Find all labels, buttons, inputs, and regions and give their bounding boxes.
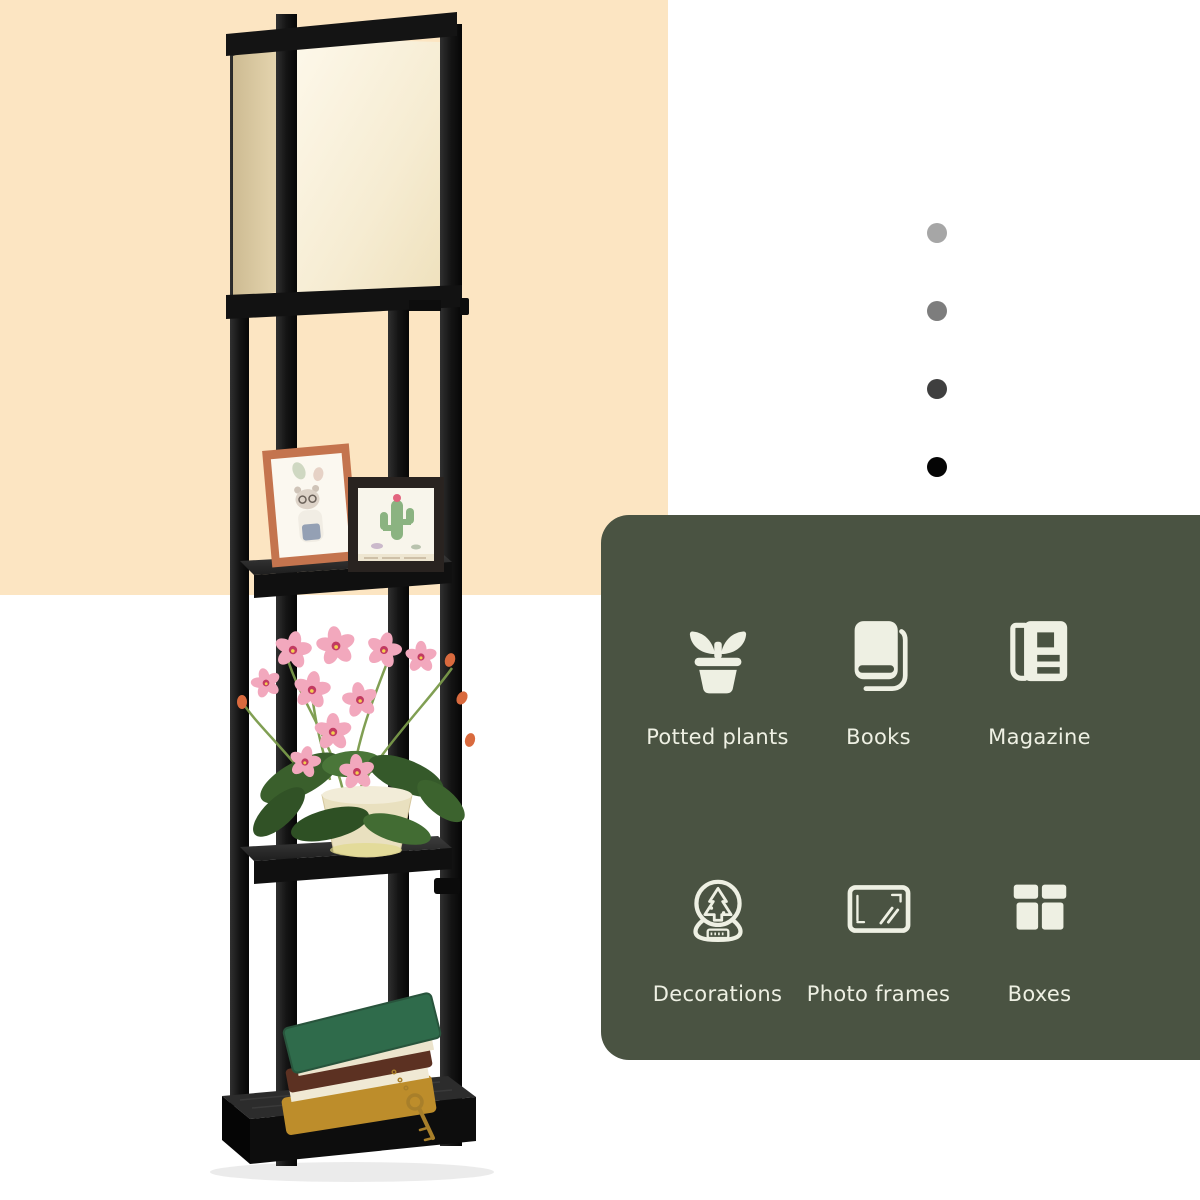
photo-frame-icon <box>834 852 924 967</box>
carousel-dot-4[interactable] <box>927 457 947 477</box>
feature-boxes: Boxes <box>959 852 1120 1061</box>
feature-label: Decorations <box>653 981 782 1007</box>
product-image: Potted plants Books Magazine <box>0 0 1200 1200</box>
feature-label: Books <box>846 724 911 750</box>
feature-label: Potted plants <box>646 724 789 750</box>
magazine-icon <box>995 595 1085 710</box>
book-icon <box>834 595 924 710</box>
feature-decorations: Decorations <box>637 852 798 1061</box>
feature-magazine: Magazine <box>959 595 1120 804</box>
potted-plant-icon <box>673 595 763 710</box>
feature-photo-frames: Photo frames <box>798 852 959 1061</box>
feature-potted-plants: Potted plants <box>637 595 798 804</box>
feature-label: Magazine <box>988 724 1091 750</box>
gift-box-icon <box>995 852 1085 967</box>
features-panel: Potted plants Books Magazine <box>601 515 1200 1060</box>
feature-label: Boxes <box>1008 981 1072 1007</box>
carousel-dots <box>927 223 947 477</box>
carousel-dot-2[interactable] <box>927 301 947 321</box>
snow-globe-icon <box>673 852 763 967</box>
carousel-dot-1[interactable] <box>927 223 947 243</box>
carousel-dot-3[interactable] <box>927 379 947 399</box>
feature-books: Books <box>798 595 959 804</box>
feature-label: Photo frames <box>807 981 950 1007</box>
